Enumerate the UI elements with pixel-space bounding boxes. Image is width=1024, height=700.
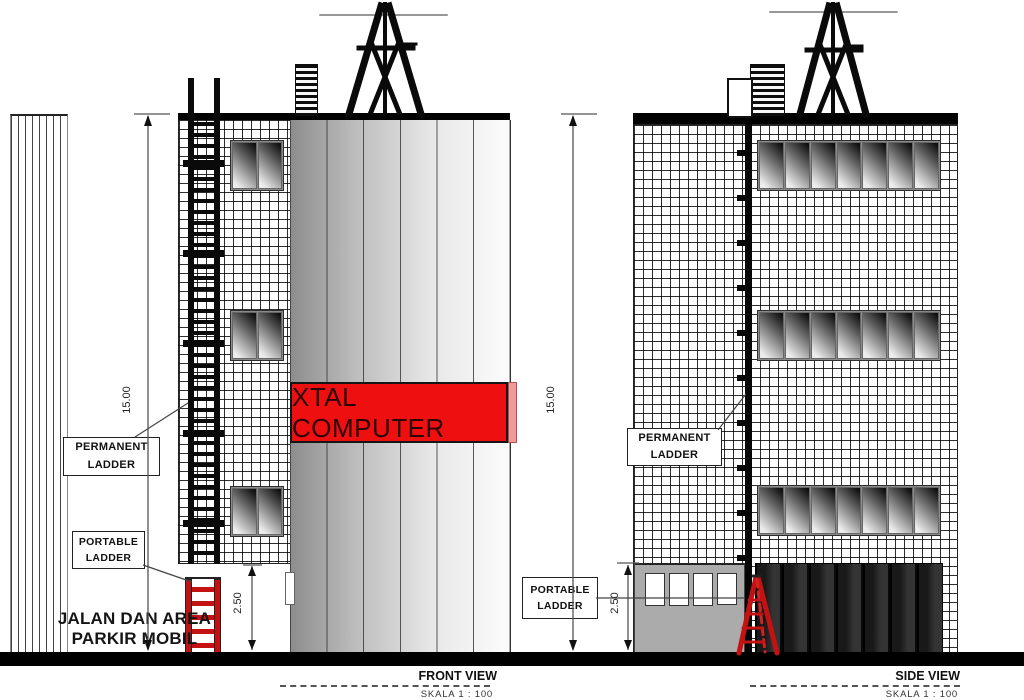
ladder-brackets xyxy=(183,160,224,563)
window-pane xyxy=(785,487,810,534)
front-roof-edge xyxy=(178,113,510,120)
side-roof-hatch xyxy=(727,78,753,118)
annex-window xyxy=(669,573,689,606)
side-height-dimension: 15.00 xyxy=(545,370,559,430)
front-antenna-tower xyxy=(320,4,447,114)
window-pane xyxy=(232,488,257,535)
window-pane xyxy=(862,142,887,189)
side-antenna-tower xyxy=(770,4,897,114)
annex-window xyxy=(645,573,665,606)
neighbor-building xyxy=(10,114,68,656)
label-line: LADDER xyxy=(651,447,699,464)
parking-area-label: JALAN DAN AREA PARKIR MOBIL xyxy=(52,609,217,650)
label-line: LADDER xyxy=(86,550,132,566)
side-permanent-ladder-label: PERMANENT LADDER xyxy=(627,428,722,466)
banner-side-return xyxy=(508,382,517,443)
window-pane xyxy=(837,142,862,189)
front-window-row-3 xyxy=(230,486,284,537)
annex-window xyxy=(717,573,737,605)
window-pane xyxy=(759,487,784,534)
label-line: LADDER xyxy=(88,457,136,474)
window-pane xyxy=(914,487,939,534)
annex-window xyxy=(693,573,713,606)
ground-line xyxy=(0,652,1024,666)
window-pane xyxy=(258,142,283,189)
front-portable-ladder-label: PORTABLE LADDER xyxy=(72,531,145,569)
permanent-ladder-side xyxy=(745,124,752,652)
company-banner: XTAL COMPUTER xyxy=(290,382,508,443)
window-pane xyxy=(258,312,283,359)
label-line: PORTABLE xyxy=(79,534,138,550)
label-line: PERMANENT xyxy=(638,430,710,447)
label-line: PARKIR MOBIL xyxy=(52,629,217,649)
window-pane xyxy=(232,312,257,359)
window-pane xyxy=(759,142,784,189)
window-pane xyxy=(888,142,913,189)
side-portable-ladder-label: PORTABLE LADDER xyxy=(522,577,598,619)
window-pane xyxy=(785,312,810,359)
window-pane xyxy=(232,142,257,189)
window-pane xyxy=(811,487,836,534)
entrance-door-frame xyxy=(285,572,295,605)
side-roof-edge xyxy=(633,113,958,124)
front-window-row-2 xyxy=(230,310,284,361)
label-line: PERMANENT xyxy=(75,439,147,456)
window-pane xyxy=(862,487,887,534)
front-height-dimension-line xyxy=(134,114,170,651)
window-pane xyxy=(811,312,836,359)
window-pane xyxy=(258,488,283,535)
side-height-dimension-line xyxy=(561,114,597,651)
window-pane xyxy=(837,312,862,359)
window-pane xyxy=(888,487,913,534)
front-view-scale: SKALA 1 : 100 xyxy=(280,689,493,700)
front-title-underline xyxy=(280,685,490,687)
company-banner-text: XTAL COMPUTER xyxy=(292,382,506,444)
front-view-title: FRONT VIEW xyxy=(280,669,497,683)
elevation-drawing: XTAL COMPUTER PERMANENT LADDER PORTABLE … xyxy=(0,0,1024,700)
window-pane xyxy=(914,312,939,359)
side-window-row-1 xyxy=(757,140,941,191)
front-height-dimension: 15.00 xyxy=(121,370,135,430)
label-line: JALAN DAN AREA xyxy=(52,609,217,629)
side-title-underline xyxy=(750,685,960,687)
label-line: LADDER xyxy=(537,598,583,614)
side-window-row-3 xyxy=(757,485,941,536)
window-pane xyxy=(862,312,887,359)
window-pane xyxy=(759,312,784,359)
window-pane xyxy=(785,142,810,189)
side-view-title: SIDE VIEW xyxy=(742,669,960,683)
window-pane xyxy=(811,142,836,189)
permanent-ladder-front xyxy=(183,78,224,564)
side-view-scale: SKALA 1 : 100 xyxy=(742,689,958,700)
front-ground-dimension: 2.50 xyxy=(232,573,246,633)
window-pane xyxy=(837,487,862,534)
side-window-row-2 xyxy=(757,310,941,361)
front-roof-vent xyxy=(295,64,318,116)
side-storefront xyxy=(755,563,943,653)
front-window-row-1 xyxy=(230,140,284,191)
window-pane xyxy=(914,142,939,189)
window-pane xyxy=(888,312,913,359)
front-permanent-ladder-label: PERMANENT LADDER xyxy=(63,437,160,476)
label-line: PORTABLE xyxy=(530,582,589,598)
side-ground-dimension: 2.50 xyxy=(609,573,623,633)
side-roof-vent xyxy=(750,64,785,116)
